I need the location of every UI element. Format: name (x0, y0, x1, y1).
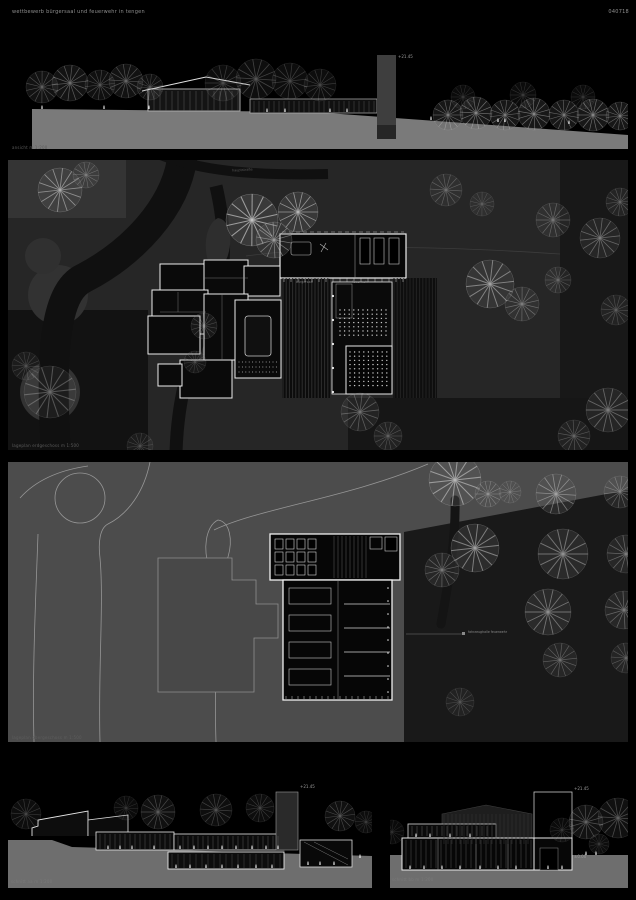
person-figure (179, 846, 180, 849)
person-figure (153, 846, 154, 849)
person-figure (449, 834, 450, 837)
tree-icon (601, 295, 628, 325)
person-figure (469, 834, 470, 837)
person-figure (175, 865, 176, 868)
person-figure (189, 865, 190, 868)
tree-icon (545, 267, 571, 293)
person-figure (251, 846, 252, 849)
person-figure (119, 846, 120, 849)
tree-icon (191, 313, 217, 339)
person-figure (459, 866, 460, 869)
person-figure (277, 846, 278, 849)
tree-icon (550, 818, 574, 842)
tree-icon (451, 85, 475, 109)
person-figure (430, 117, 431, 120)
tree-icon (184, 351, 206, 373)
tree-icon (425, 553, 459, 587)
tree-icon (141, 795, 175, 829)
person-figure (479, 866, 480, 869)
elevation-caption: ansicht m 1:200 (12, 145, 47, 150)
tree-icon (11, 799, 41, 829)
person-figure (148, 106, 149, 109)
section-a-caption: schnitt aa m 1:200 (11, 879, 52, 884)
person-figure (504, 119, 505, 122)
tree-icon (571, 85, 595, 109)
person-figure (359, 855, 360, 858)
site-plan-ground-panel: hauptstraße bürgersaal feuerwehr lagepla… (8, 160, 628, 450)
elevation-marker: +21.45 (398, 54, 413, 59)
tree-icon (538, 529, 588, 579)
section-band (174, 834, 284, 850)
person-figure (429, 834, 430, 837)
site-plan-upper-caption: lageplan obergeschoss m 1:500 (12, 735, 82, 740)
truck-bays (360, 238, 399, 264)
tree-icon (580, 218, 620, 258)
site-plan-upper-drawing (8, 462, 628, 742)
person-figure (221, 846, 222, 849)
section-a-panel: +21.45 schnitt aa m 1:200 (8, 770, 372, 892)
person-figure (423, 866, 424, 869)
tree-icon (430, 174, 462, 206)
person-figure (266, 109, 267, 112)
tree-icon (525, 589, 571, 635)
sheet-title: wettbewerb bürgersaal und feuerwehr in t… (12, 9, 145, 15)
section-b-panel: +21.45 ±0.00 schnitt bb m 1:200 (390, 770, 628, 892)
tree-icon (536, 474, 576, 514)
plan-dots (349, 351, 387, 386)
person-figure (41, 106, 42, 109)
elevation-panel: +21.45 ansicht m 1:200 (8, 45, 628, 152)
person-figure (205, 865, 206, 868)
tree-icon (355, 811, 372, 833)
tree-icon (374, 422, 402, 450)
dark-field (404, 490, 628, 742)
tree-icon (543, 643, 577, 677)
site-plan-upper-panel: fahrzeughalle feuerwehr lageplan oberges… (8, 462, 628, 742)
person-figure (221, 865, 222, 868)
person-figure (235, 846, 236, 849)
canopy-roof (393, 278, 437, 398)
hatch-lines (283, 278, 328, 398)
tree-icon (304, 69, 336, 101)
section-b-marker-top: +21.45 (574, 786, 589, 791)
tree-icon (510, 82, 536, 108)
green-patch (25, 238, 61, 274)
person-figure (497, 866, 498, 869)
hall-plan (280, 234, 406, 278)
tree-icon (256, 222, 292, 258)
arena-outline (245, 316, 271, 356)
tree-icon (505, 287, 539, 321)
tree-icon (246, 794, 274, 822)
person-figure (595, 852, 596, 855)
tree-icon (536, 203, 570, 237)
person-figure (515, 866, 516, 869)
person-figure (346, 109, 347, 112)
person-figure (497, 119, 498, 122)
tree-icon (475, 481, 501, 507)
person-figure (265, 846, 266, 849)
tree-icon (73, 162, 99, 188)
street-elevation-drawing (8, 45, 628, 152)
section-b-caption: schnitt bb m 1:200 (392, 877, 434, 882)
hatch-lines (178, 836, 278, 850)
tree-icon (589, 834, 609, 854)
leader-bullet (462, 632, 465, 635)
tree-icon (558, 420, 590, 450)
tree-icon (52, 65, 88, 101)
person-figure (193, 846, 194, 849)
person-figure (409, 866, 410, 869)
person-figure (131, 846, 132, 849)
halls-plan (283, 580, 392, 700)
site-plan-ground-caption: lageplan erdgeschoss m 1:500 (12, 443, 79, 448)
person-figure (207, 846, 208, 849)
person-figure (333, 862, 334, 865)
person-figure (441, 866, 442, 869)
section-b-drawing (390, 770, 628, 892)
person-figure (103, 106, 104, 109)
presentation-board: wettbewerb bürgersaal und feuerwehr in t… (0, 0, 636, 900)
leader-label: fahrzeughalle feuerwehr (468, 630, 507, 634)
person-figure (547, 866, 548, 869)
section-a-marker: +21.45 (300, 784, 315, 789)
person-figure (107, 846, 108, 849)
section-b-marker-base: ±0.00 (574, 854, 586, 859)
person-figure (237, 865, 238, 868)
hall-label: bürgersaal (296, 280, 313, 284)
person-figure (319, 862, 320, 865)
room-outline (385, 537, 397, 551)
lower-hall (346, 346, 392, 394)
person-figure (568, 121, 569, 124)
tree-icon (200, 794, 232, 826)
hose-tower (276, 792, 298, 850)
tree-icon (109, 64, 143, 98)
person-figure (415, 834, 416, 837)
tree-icon (205, 65, 241, 101)
tree-icon (236, 59, 276, 99)
sheet-code: 040718 (608, 9, 629, 15)
person-figure (561, 866, 562, 869)
site-plan-ground-drawing (8, 160, 628, 450)
section-a-drawing (8, 770, 372, 892)
tree-icon (137, 74, 163, 100)
tree-icon (341, 393, 379, 431)
firestation-label: feuerwehr (352, 280, 368, 284)
person-figure (307, 862, 308, 865)
tree-icon (598, 798, 628, 838)
tree-icon (470, 192, 494, 216)
tower-base (377, 125, 396, 139)
person-figure (284, 109, 285, 112)
tree-icon (272, 63, 308, 99)
tree-icon (114, 796, 138, 820)
tree-icon (499, 481, 521, 503)
tree-icon (325, 801, 355, 831)
tree-icon (12, 352, 40, 380)
person-figure (271, 865, 272, 868)
person-figure (255, 865, 256, 868)
tree-icon (606, 102, 628, 130)
tree-icon (446, 688, 474, 716)
person-figure (329, 109, 330, 112)
tree-icon (586, 388, 628, 432)
garage-door (540, 848, 558, 870)
